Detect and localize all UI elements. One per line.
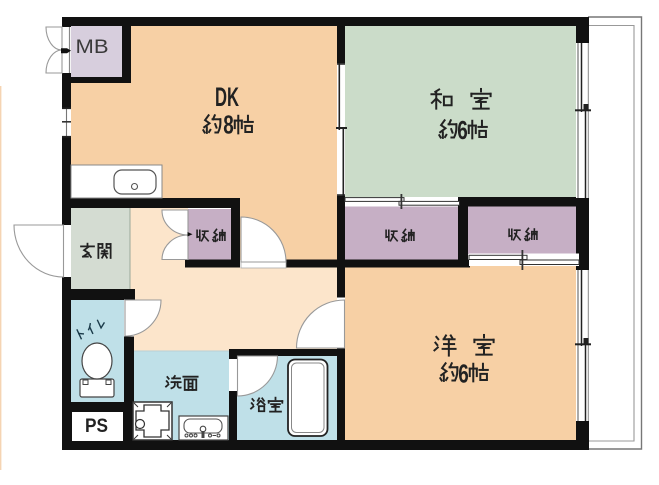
svg-text:6: 6 <box>458 359 469 389</box>
svg-text:PS: PS <box>85 416 108 437</box>
svg-text:DK: DK <box>215 82 239 112</box>
svg-text:MB: MB <box>76 37 109 58</box>
svg-text:6: 6 <box>457 115 468 145</box>
svg-text:8: 8 <box>223 110 234 140</box>
